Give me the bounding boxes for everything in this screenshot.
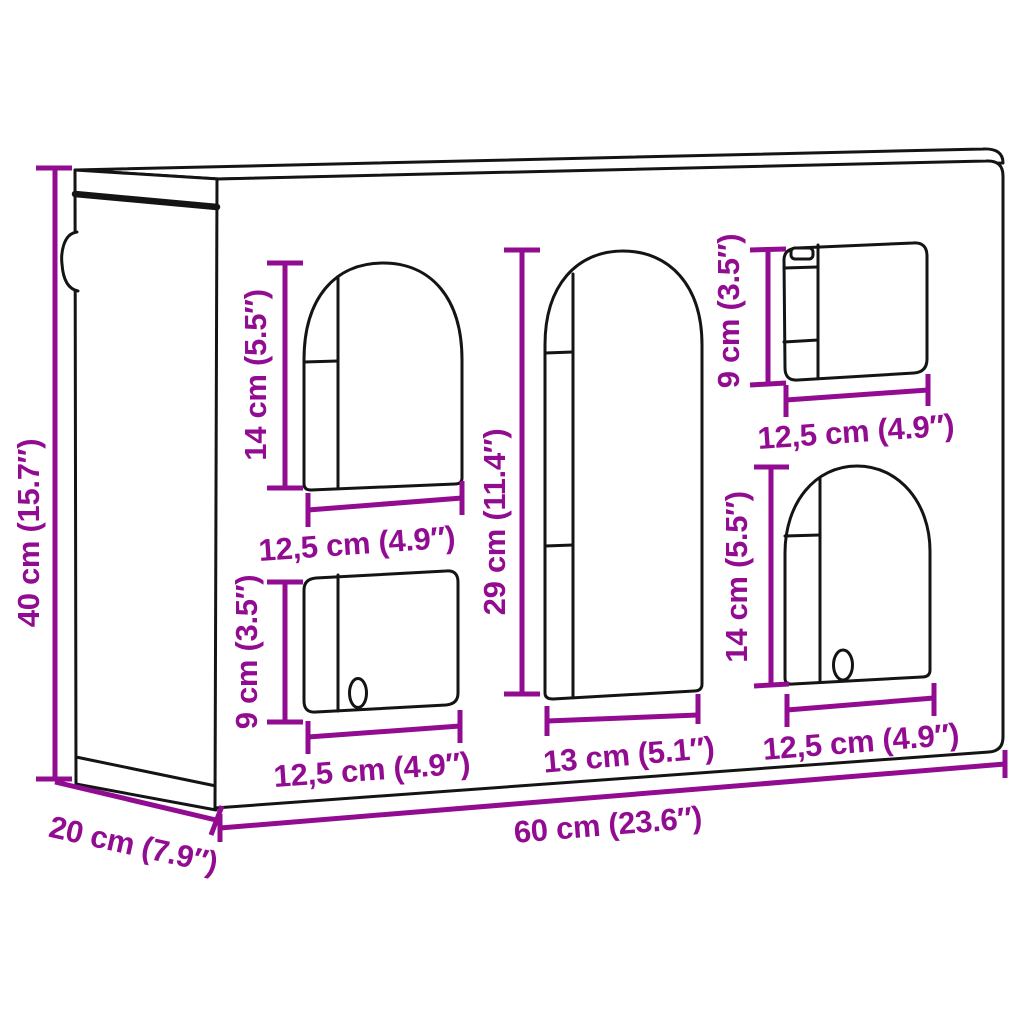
opening-upper-left-arch: [304, 263, 462, 490]
opening-top-right-window: [784, 243, 927, 380]
label-center-height: 29 cm (11.4″): [477, 429, 512, 616]
label-overall-depth: 20 cm (7.9″): [46, 809, 221, 880]
label-overall-height: 40 cm (15.7″): [11, 439, 46, 627]
opening-center-arch: [545, 251, 702, 699]
opening-upper-left-arch-rail: [304, 361, 338, 362]
label-overall-width: 60 cm (23.6″): [512, 800, 703, 850]
opening-center-arch-rail-upper: [545, 352, 573, 353]
opening-lower-left-hole: [350, 679, 367, 708]
label-top-right-height: 9 cm (3.5″): [711, 234, 746, 389]
cabinet-left-face: [75, 170, 219, 810]
opening-lower-left-window: [304, 571, 458, 712]
opening-top-right-notch: [791, 248, 813, 259]
opening-lower-right-arch-rail: [785, 535, 820, 536]
label-lower-left-height: 9 cm (3.5″): [229, 575, 264, 730]
label-lower-right-height: 14 cm (5.5″): [719, 491, 754, 663]
opening-lower-right-arch: [785, 466, 930, 684]
cabinet-hinge: [62, 232, 78, 291]
opening-top-right-window-rail-lower: [784, 340, 818, 342]
label-upper-left-height: 14 cm (5.5″): [238, 289, 273, 461]
cabinet-dimension-drawing: 40 cm (15.7″) 20 cm (7.9″) 60 cm (23.6″)…: [0, 0, 1024, 1024]
opening-center-arch-rail-lower: [545, 545, 573, 546]
product-dimension-diagram: 40 cm (15.7″) 20 cm (7.9″) 60 cm (23.6″)…: [0, 0, 1024, 1024]
opening-lower-right-hole: [834, 650, 853, 680]
opening-top-right-window-rail-upper: [784, 267, 818, 268]
